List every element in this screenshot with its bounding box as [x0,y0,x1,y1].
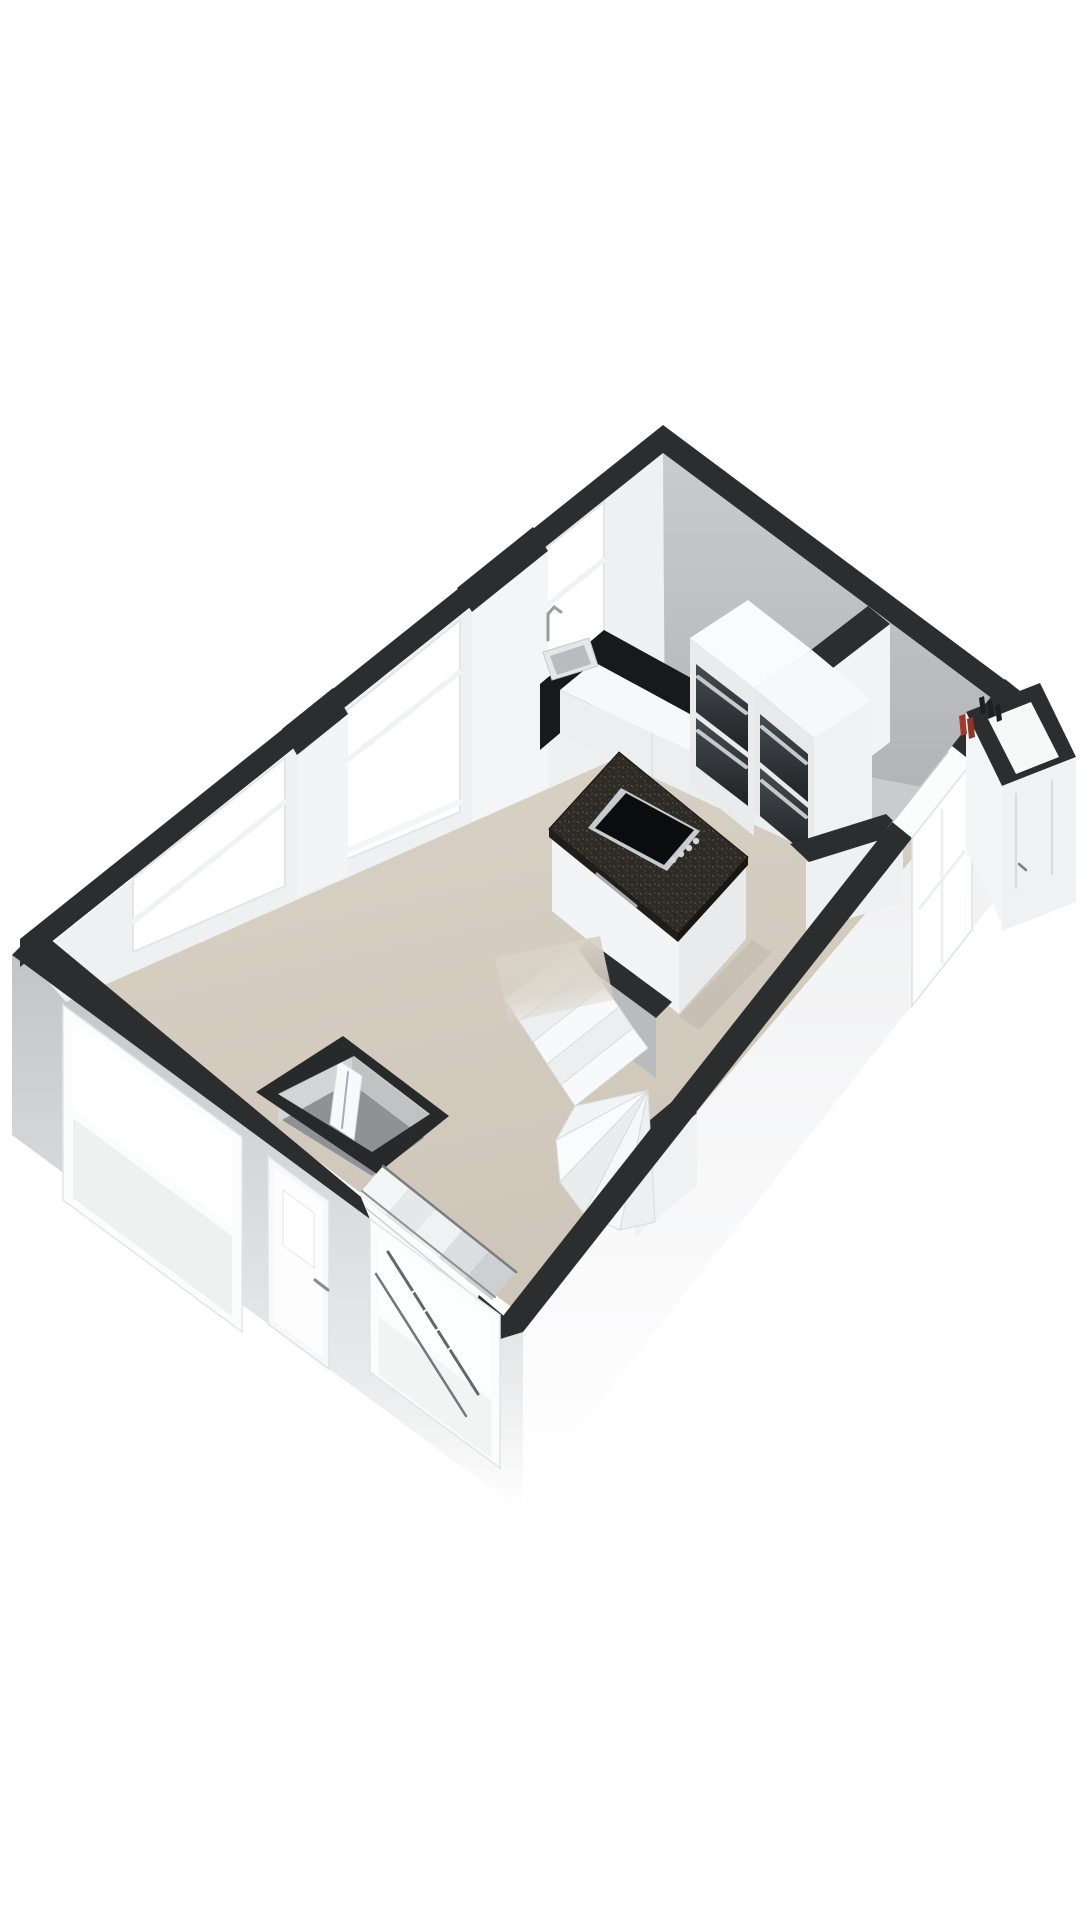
cooktop-knob [693,838,699,844]
cooktop-knob [678,851,684,857]
cooktop-knob [670,857,676,863]
floorplan-3d-view [0,0,1080,1920]
annex-face-front [1002,757,1076,931]
floorplan-svg [0,0,1080,1920]
cooktop-knob [686,845,692,851]
scene-root [12,425,1076,1512]
